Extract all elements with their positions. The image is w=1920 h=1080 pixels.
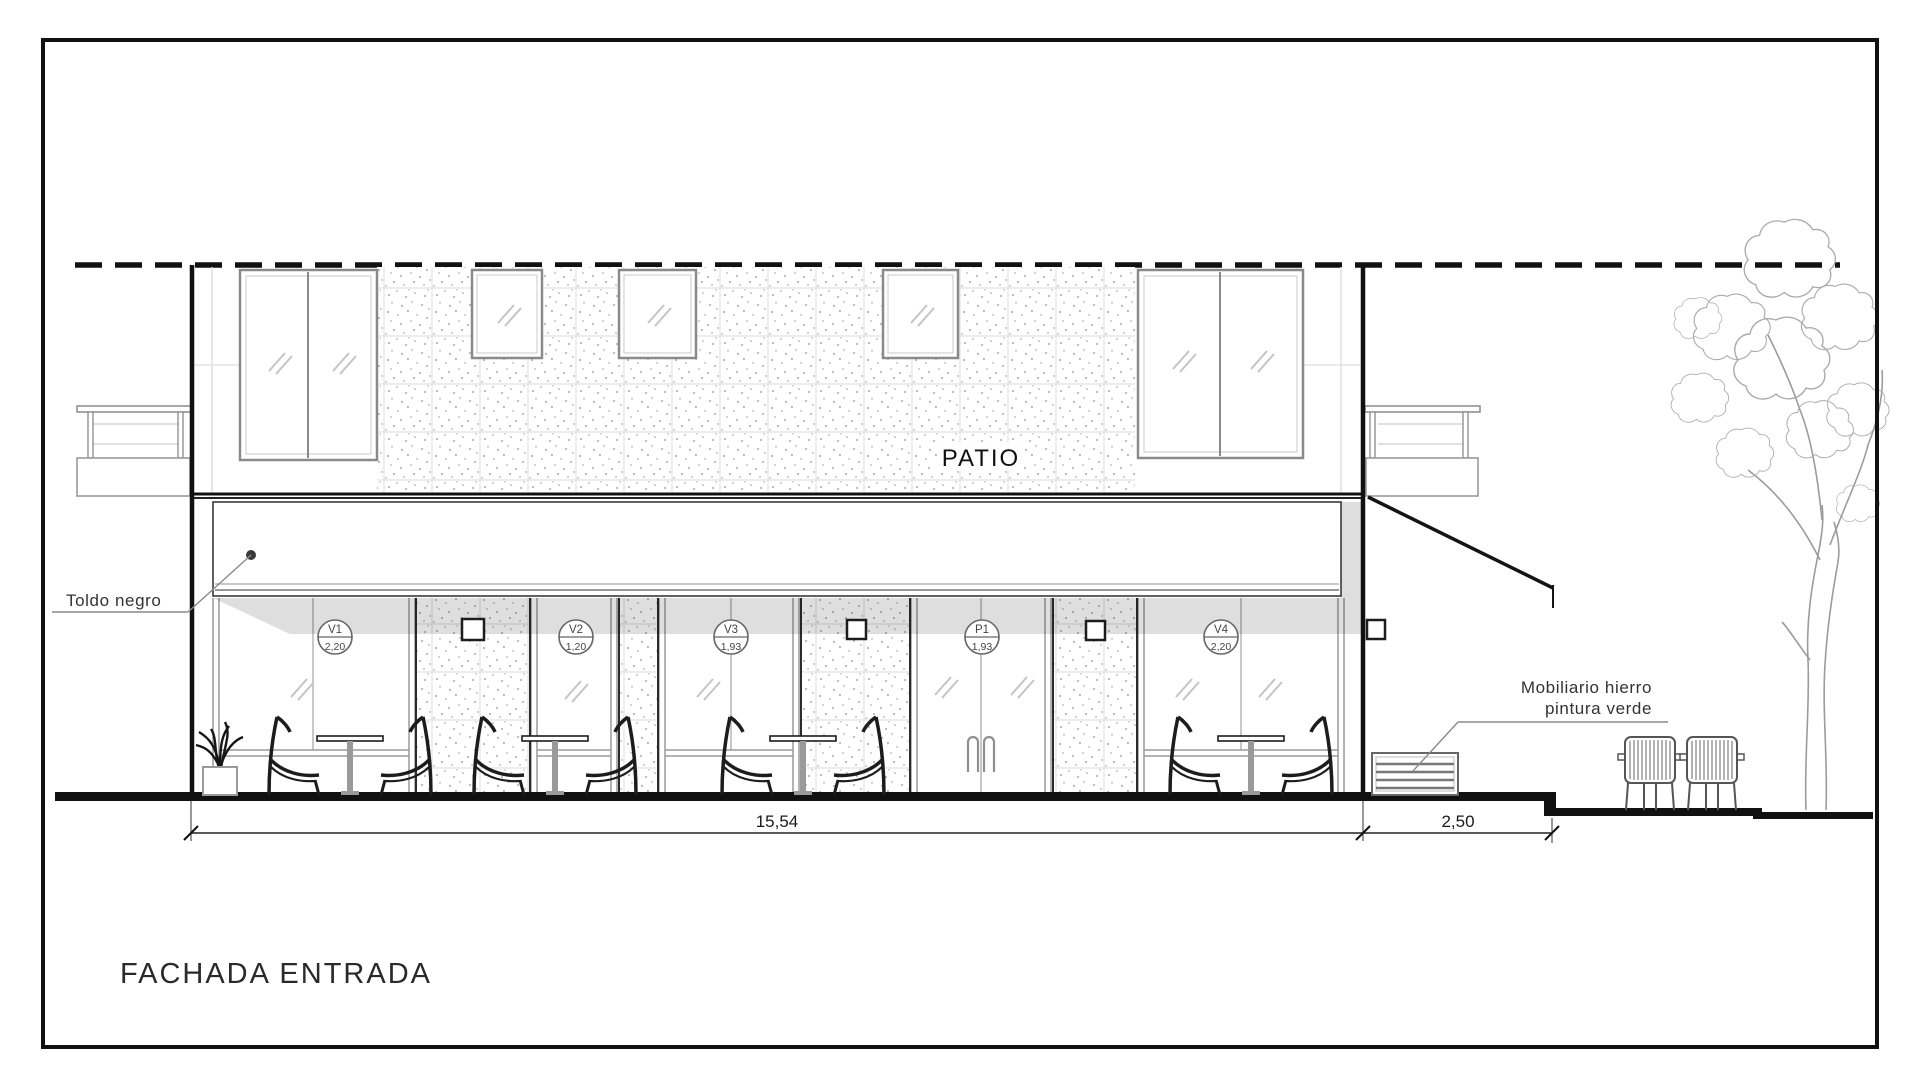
tag-id: V1 bbox=[328, 624, 342, 636]
dimension-terrace-value: 2,50 bbox=[1441, 812, 1474, 831]
awning bbox=[192, 498, 1363, 596]
elevation-drawing: PATIO bbox=[0, 0, 1920, 1080]
tag-id: V4 bbox=[1214, 624, 1229, 636]
tag-id: V3 bbox=[724, 624, 738, 636]
window-tag-v3: V3 1,93 bbox=[714, 620, 748, 654]
tag-size: 1,93 bbox=[721, 641, 742, 653]
vent-square-2 bbox=[847, 620, 866, 639]
window-tag-v4: V4 2,20 bbox=[1204, 620, 1238, 654]
upper-window-small-2 bbox=[619, 270, 696, 358]
patio-label: PATIO bbox=[942, 445, 1020, 472]
facade-drawing-canvas: PATIO bbox=[0, 0, 1920, 1080]
window-tag-v1: V1 2,20 bbox=[318, 620, 352, 654]
tag-size: 2,20 bbox=[325, 641, 346, 653]
drawing-title: FACHADA ENTRADA bbox=[120, 958, 432, 990]
tag-id: P1 bbox=[975, 624, 989, 636]
tag-size: 1,20 bbox=[566, 641, 587, 653]
upper-window-large-right bbox=[1138, 270, 1303, 458]
upper-window-small-1 bbox=[472, 270, 542, 358]
tag-size: 1,93 bbox=[972, 641, 993, 653]
upper-window-large-left bbox=[240, 270, 377, 460]
vent-square-1 bbox=[462, 619, 484, 640]
bench-box bbox=[1372, 753, 1458, 795]
dimension-facade-value: 15,54 bbox=[756, 812, 799, 831]
window-tag-p1: P1 1,93 bbox=[965, 620, 999, 654]
tag-size: 2,20 bbox=[1211, 641, 1232, 653]
window-tag-v2: V2 1,20 bbox=[559, 620, 593, 654]
awning-label: Toldo negro bbox=[66, 591, 161, 610]
furniture-label-line2: pintura verde bbox=[1545, 699, 1652, 718]
vent-square-3 bbox=[1086, 621, 1105, 640]
wall-lamp bbox=[1367, 620, 1385, 639]
upper-window-small-3 bbox=[883, 270, 958, 358]
tag-id: V2 bbox=[569, 624, 583, 636]
furniture-label-line1: Mobiliario hierro bbox=[1521, 678, 1652, 697]
